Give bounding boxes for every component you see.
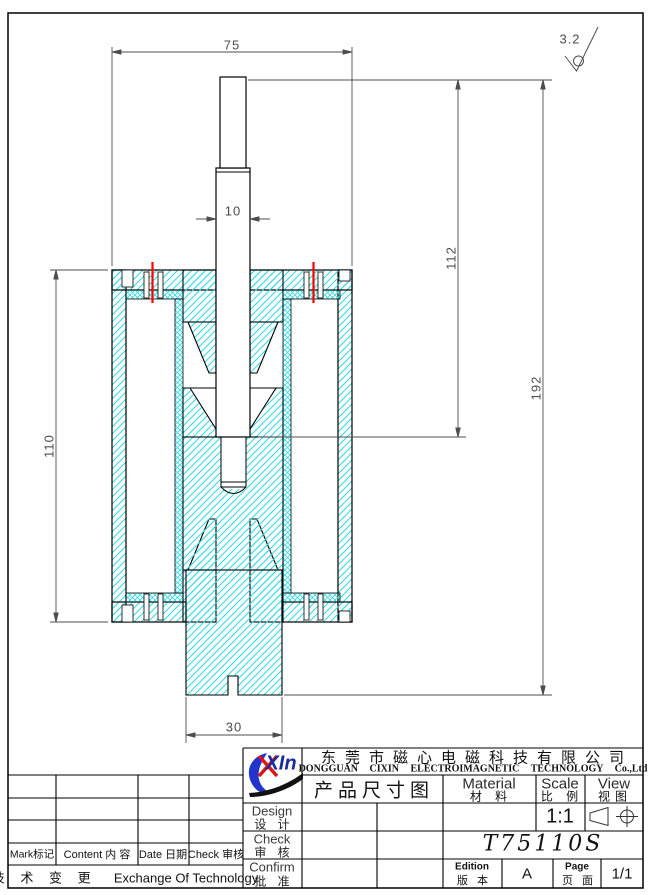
revision-footer: 技 术 变 更 Exchange Of Technology: [0, 868, 258, 887]
revision-col-content: Content 内 容: [64, 846, 131, 862]
revision-col-mark: Mark标记: [10, 847, 54, 862]
revision-footer-en: Exchange Of Technology: [114, 871, 258, 886]
part-number: T75110S: [483, 832, 604, 857]
dim-stroke-depth: 112: [444, 246, 459, 270]
plunger: [216, 77, 250, 437]
page-value: 1/1: [612, 866, 633, 883]
scale-header-cn: 比 例: [541, 788, 583, 805]
drawing-sheet: 75 10 110 112 192 30 3.2 XIn 东莞市磁心电磁科技有限…: [0, 0, 652, 895]
surface-roughness-value: 3.2: [559, 32, 580, 47]
page-label-en: Page: [565, 862, 589, 873]
company-name-en: DONGGUAN CIXIN ELECTROIMAGNETIC TECHNOLO…: [299, 764, 648, 775]
document-title: 产品尺寸图: [314, 776, 434, 803]
view-header-cn: 视图: [598, 788, 632, 805]
revision-col-date: Date 日期: [139, 846, 187, 862]
dim-top-width: 75: [224, 38, 240, 53]
revision-footer-cn: 技 术 变 更: [0, 871, 97, 886]
dim-body-height: 110: [42, 434, 57, 458]
core-hole: [221, 437, 246, 494]
dim-base-width: 30: [226, 720, 242, 735]
check-label-cn: 审 核: [254, 844, 293, 861]
page-label-cn: 页 面: [562, 872, 596, 888]
company-logo-text: XIn: [265, 753, 296, 776]
dim-total-height: 192: [529, 376, 544, 401]
scale-value: 1:1: [546, 806, 574, 829]
confirm-label-cn: 批 准: [254, 873, 293, 890]
edition-label-cn: 版 本: [457, 872, 491, 888]
edition-value: A: [522, 866, 532, 883]
design-label-cn: 设 计: [254, 816, 293, 833]
material-header-cn: 材 料: [470, 788, 512, 805]
projection-view-icon: [590, 806, 638, 827]
revision-col-check: Check 审核: [188, 846, 244, 862]
edition-label-en: Edition: [455, 862, 489, 873]
dim-shaft-width: 10: [225, 204, 241, 219]
core-base-post: [186, 570, 282, 695]
